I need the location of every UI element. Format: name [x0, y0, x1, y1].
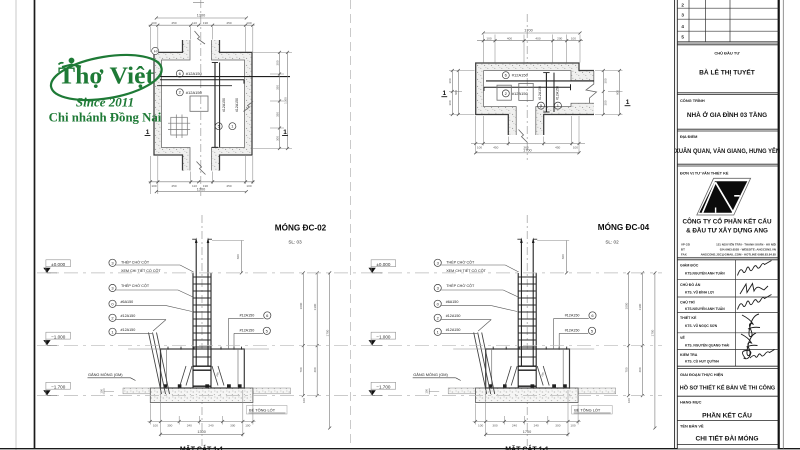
- svg-text:#12A150: #12A150: [222, 98, 226, 112]
- svg-text:300: 300: [275, 136, 279, 141]
- svg-text:SL: 03: SL: 03: [288, 240, 302, 245]
- svg-text:5: 5: [681, 35, 684, 40]
- svg-text:1700: 1700: [523, 430, 531, 434]
- svg-text:450: 450: [171, 184, 176, 188]
- svg-text:1300: 1300: [197, 187, 205, 191]
- svg-text:450: 450: [555, 145, 560, 149]
- svg-text:ĐT: ĐT: [681, 248, 685, 252]
- svg-text:4: 4: [681, 24, 684, 29]
- svg-text:100: 100: [573, 145, 578, 149]
- svg-text:CÔNG TRÌNH: CÔNG TRÌNH: [680, 98, 705, 103]
- svg-text:300: 300: [275, 60, 279, 65]
- svg-text:350: 350: [275, 85, 279, 90]
- svg-text:400: 400: [535, 37, 540, 41]
- svg-text:THIẾT KẾ: THIẾT KẾ: [680, 315, 697, 320]
- svg-text:100: 100: [151, 184, 156, 188]
- svg-text:KTS. VŨ NGỌC SƠN: KTS. VŨ NGỌC SƠN: [685, 323, 718, 328]
- svg-text:KTS. VŨ ĐÌNH LỢI: KTS. VŨ ĐÌNH LỢI: [685, 290, 714, 295]
- svg-text:1700: 1700: [523, 149, 531, 153]
- svg-text:±0.000: ±0.000: [376, 262, 390, 267]
- svg-text:1300: 1300: [197, 14, 205, 18]
- svg-text:HẠNG MỤC: HẠNG MỤC: [680, 400, 702, 405]
- svg-text:Thợ Việt: Thợ Việt: [58, 64, 154, 90]
- svg-text:#12A150: #12A150: [512, 91, 529, 96]
- svg-text:CHỦ TRÌ: CHỦ TRÌ: [680, 300, 695, 305]
- svg-text:600: 600: [454, 90, 458, 95]
- svg-text:KTS.NGUYỄN ANH TUẤN: KTS.NGUYỄN ANH TUẤN: [685, 271, 725, 276]
- svg-text:−1.700: −1.700: [376, 384, 391, 389]
- svg-text:H: H: [154, 49, 157, 54]
- svg-text:450: 450: [171, 21, 176, 25]
- svg-text:450: 450: [226, 21, 231, 25]
- svg-text:HỒ SƠ THIẾT KẾ BẢN VẼ THI CÔNG: HỒ SƠ THIẾT KẾ BẢN VẼ THI CÔNG: [680, 384, 775, 392]
- svg-text:100: 100: [246, 184, 251, 188]
- svg-text:GIAI ĐOẠN THỰC HIỆN: GIAI ĐOẠN THỰC HIỆN: [680, 372, 723, 377]
- svg-text:ĐƠN VỊ TƯ VẤN THIẾT KẾ: ĐƠN VỊ TƯ VẤN THIẾT KẾ: [680, 171, 729, 176]
- svg-text:#12A150: #12A150: [512, 73, 529, 78]
- svg-text:−1.000: −1.000: [376, 334, 391, 339]
- svg-text:ANGCONS.JSC@GMAIL.COM - HOTLIN: ANGCONS.JSC@GMAIL.COM - HOTLINE 0988.83.…: [701, 253, 777, 257]
- svg-text:#12A150: #12A150: [186, 71, 203, 76]
- svg-text:TÊN BẢN VẼ: TÊN BẢN VẼ: [680, 424, 704, 429]
- svg-text:100: 100: [246, 21, 251, 25]
- svg-text:−1.700: −1.700: [51, 384, 66, 389]
- svg-text:2: 2: [681, 2, 684, 7]
- svg-text:KIỂM TRA: KIỂM TRA: [680, 352, 698, 357]
- svg-text:MÓNG ĐC-02: MÓNG ĐC-02: [275, 222, 327, 233]
- svg-text:300: 300: [448, 100, 452, 105]
- svg-text:3: 3: [681, 12, 684, 17]
- svg-text:600: 600: [615, 90, 619, 95]
- svg-text:024.6663.6528 - WEBSITE: ANGCO: 024.6663.6528 - WEBSITE: ANGCONS.VN: [720, 248, 776, 252]
- svg-text:MÓNG ĐC-04: MÓNG ĐC-04: [598, 221, 650, 232]
- svg-text:100: 100: [477, 145, 482, 149]
- svg-text:1: 1: [626, 99, 630, 106]
- svg-text:400: 400: [507, 37, 512, 41]
- svg-text:200: 200: [557, 37, 562, 41]
- svg-text:VẼ: VẼ: [680, 335, 685, 340]
- svg-text:350: 350: [275, 112, 279, 117]
- svg-text:KTS. CÙ HUY QUỲNH: KTS. CÙ HUY QUỲNH: [685, 359, 719, 364]
- svg-text:XUÂN QUAN, VĂN GIANG, HƯNG YÊN: XUÂN QUAN, VĂN GIANG, HƯNG YÊN: [675, 147, 780, 155]
- svg-text:FAX: FAX: [681, 253, 687, 257]
- svg-text:100: 100: [571, 37, 576, 41]
- svg-text:KTS. NGUYỄN QUANG THÁI: KTS. NGUYỄN QUANG THÁI: [685, 343, 729, 348]
- svg-text:1300: 1300: [197, 430, 205, 434]
- svg-text:1: 1: [442, 90, 446, 97]
- svg-text:#12A150: #12A150: [235, 98, 239, 112]
- svg-text:VP GD: VP GD: [681, 243, 690, 247]
- svg-text:Chi nhánh Đồng Nai: Chi nhánh Đồng Nai: [49, 111, 162, 125]
- svg-text:KTS.NGUYỄN ANH TUẤN: KTS.NGUYỄN ANH TUẤN: [685, 306, 725, 311]
- svg-text:1700: 1700: [524, 29, 532, 33]
- svg-text:190: 190: [203, 21, 208, 25]
- svg-text:300: 300: [448, 78, 452, 83]
- svg-text:450: 450: [493, 145, 498, 149]
- svg-text:Since 2011: Since 2011: [76, 95, 134, 110]
- svg-text:300: 300: [604, 100, 608, 105]
- svg-text:450: 450: [226, 184, 231, 188]
- svg-text:1: 1: [283, 129, 287, 136]
- svg-text:110: 110: [192, 21, 197, 25]
- svg-text:#12A150: #12A150: [556, 86, 560, 100]
- svg-text:±0.000: ±0.000: [51, 262, 65, 267]
- svg-text:#12A150: #12A150: [186, 90, 203, 95]
- svg-text:1300: 1300: [283, 97, 287, 104]
- svg-text:CHỦ ĐẦU TƯ: CHỦ ĐẦU TƯ: [714, 51, 740, 56]
- svg-text:100: 100: [151, 21, 156, 25]
- svg-text:121 NGUYỄN TRÃI - THANH XUÂN -: 121 NGUYỄN TRÃI - THANH XUÂN - HÀ NỘI: [716, 242, 776, 247]
- svg-text:100: 100: [486, 37, 491, 41]
- svg-text:−1.000: −1.000: [51, 334, 66, 339]
- svg-text:GIÁM ĐỐC: GIÁM ĐỐC: [680, 263, 699, 268]
- svg-text:300: 300: [604, 78, 608, 83]
- svg-text:#12A150: #12A150: [538, 86, 542, 100]
- svg-text:CHỦ ĐỒ ÁN: CHỦ ĐỒ ÁN: [680, 282, 701, 287]
- svg-text:ĐỊA ĐIỂM: ĐỊA ĐIỂM: [680, 134, 697, 139]
- svg-text:1: 1: [146, 129, 150, 136]
- svg-text:SL: 02: SL: 02: [605, 240, 619, 245]
